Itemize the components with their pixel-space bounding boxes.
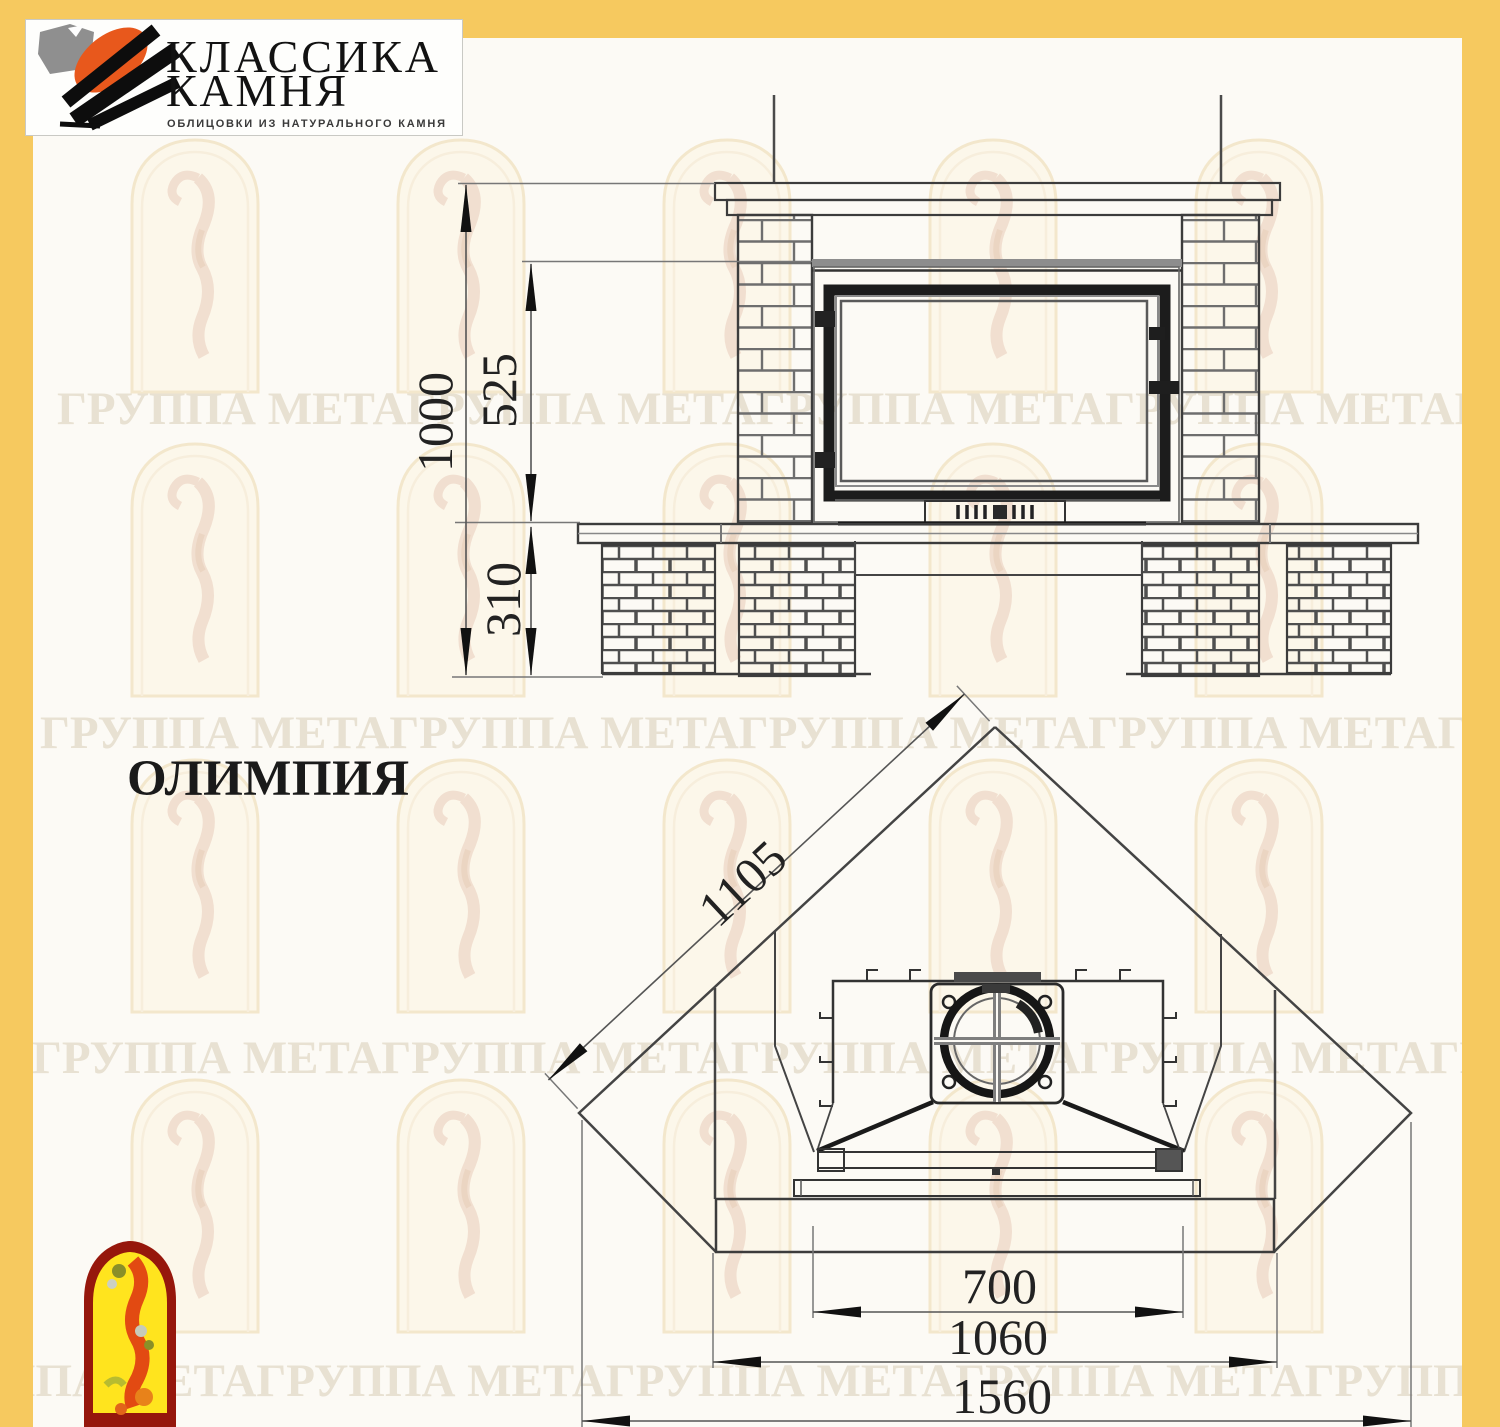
svg-text:1000: 1000 [407, 372, 463, 472]
svg-text:1105: 1105 [687, 829, 797, 937]
svg-text:1060: 1060 [948, 1309, 1048, 1365]
svg-text:1560: 1560 [952, 1368, 1052, 1424]
svg-text:КАМНЯ: КАМНЯ [166, 65, 346, 116]
svg-text:525: 525 [471, 353, 527, 428]
svg-text:ОБЛИЦОВКИ ИЗ НАТУРАЛЬНОГО КАМН: ОБЛИЦОВКИ ИЗ НАТУРАЛЬНОГО КАМНЯ [167, 118, 445, 130]
svg-text:310: 310 [475, 562, 531, 637]
svg-text:700: 700 [962, 1258, 1037, 1314]
